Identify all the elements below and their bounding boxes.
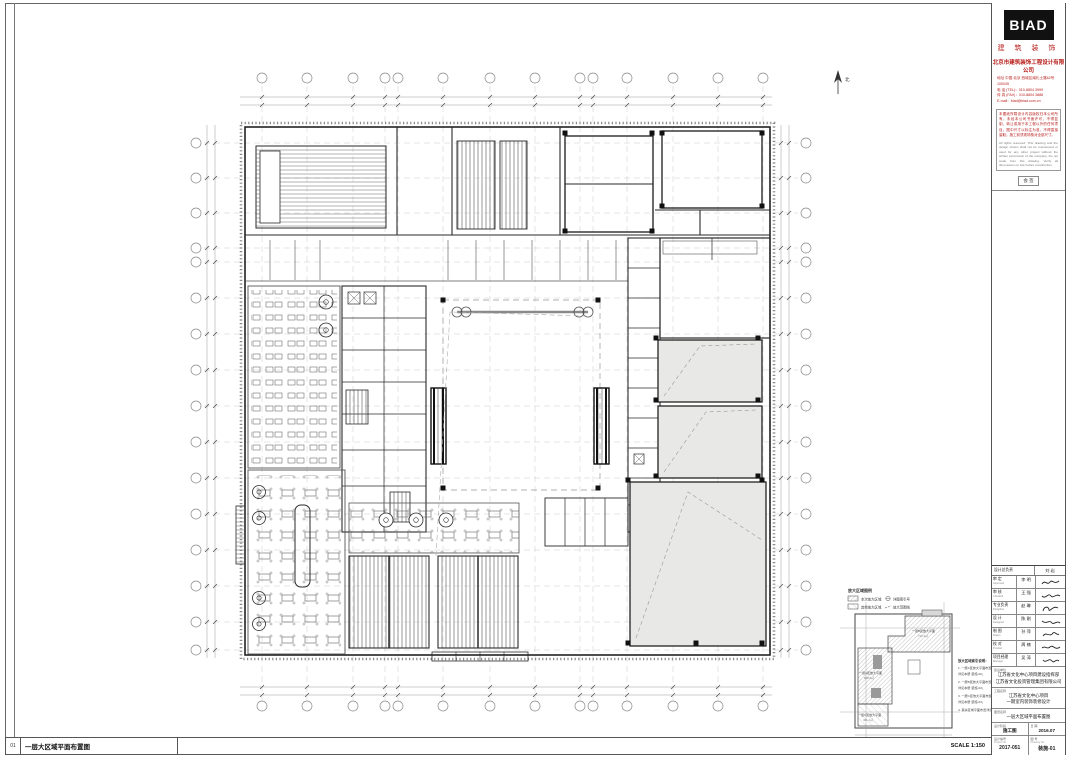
client-line: 江苏省文化投资管理集团有限公司 [994,679,1063,685]
row-role-en: Discipline [993,608,1015,611]
keyplan-zone-c: 一层C区放大平面 [858,712,881,717]
drawing-no-en: Drawing No. [1031,741,1064,744]
project-line: 一期室内装饰装修设计 [994,699,1063,705]
countersign-area [992,190,1065,565]
row-name: 王 强 [1017,589,1036,601]
keyplan-zone-b-area: 772.3㎡ [918,634,928,638]
address-line: 地址 中国 北京 西城区南礼士路62号 100045 [997,76,1060,88]
north-label: 北 [845,76,850,83]
notes-english: All rights reserved. This drawing and th… [999,141,1058,168]
keyplan-legend-title: 放大区域图例 [847,587,872,593]
legend-item-2: 其他放大区域 [861,605,882,610]
row-name: 赵 琳 [1017,602,1036,614]
row-role-en: Drawn [993,634,1015,637]
row-role-en: Proofed [993,647,1015,650]
titleblock-row: 设 计Designed 陈 刚 [992,615,1065,628]
titleblock-row: 制 图Drawn 孙 萍 [992,628,1065,641]
keyplan-zone-a: 一层A区放大平面 [859,670,882,675]
drawing-title-value: 一层大区域平面布置图 [994,714,1063,720]
company-address: 地址 中国 北京 西城区南礼士路62号 100045 电 话 (TEL)：010… [997,76,1060,105]
signature [1036,628,1065,640]
project-no-value: 2017-051 [994,745,1026,751]
notes-chinese: 本图纸所载设计内容版权归本公司所有，未经本公司书面许可，不得复制、转让或用于本工… [999,112,1058,138]
stage-value: 施工图 [994,728,1026,734]
signature [1036,589,1065,601]
keyplan-note: 详见本册 装施-02； [958,671,985,676]
row-name: 李 明 [1017,576,1036,588]
legend-item-1: 本次放大区域 [861,597,882,602]
client-line: 江苏省文化中心项目建设指挥部 [994,672,1063,678]
shaded-zones [630,340,766,646]
project-block: 工程名称 江苏省文化中心项目 一期室内装饰装修设计 [992,688,1065,709]
date-value: 2016.07 [1031,728,1064,733]
row-role-en: Checked [993,595,1015,598]
meta-row: 设计阶段 施工图 日 期 2016.07 [992,723,1065,736]
signature [1036,576,1065,588]
drawing-no-value: 装施-01 [1031,745,1064,752]
project-no-en: Project No. [994,741,1026,744]
row-name: 孙 萍 [1017,628,1036,640]
titleblock-header: 设计总负责 刘 岩 [992,566,1065,576]
client-block: 建设单位 江苏省文化中心项目建设指挥部 江苏省文化投资管理集团有限公司 [992,667,1065,688]
chief-name: 刘 岩 [1035,566,1065,575]
numbers-row: 设计编号 Project No. 2017-051 图 号 Drawing No… [992,736,1065,755]
keyplan-notes-title: 放大区域索引说明： [957,658,989,663]
signature [1036,602,1065,614]
keyplan-zone-a-area: 658.6㎡ [864,676,874,680]
signature [1036,654,1065,666]
footer-spacer [178,738,951,754]
company-name: 北京市建筑装饰工程设计有限公司 [992,58,1065,74]
row-name: 吴 涛 [1017,654,1036,666]
title-strip: BIAD 建 筑 装 饰 北京市建筑装饰工程设计有限公司 地址 中国 北京 西城… [991,3,1066,755]
logo-text: BIAD [1009,17,1047,33]
escalator-right [594,388,609,464]
keyplan-note: 详见本册 装施-03； [958,685,985,690]
north-arrow-icon: 北 [834,70,850,94]
keyplan: 放大区域图例 本次放大区域 详图索引号 其他放大区域 放大范围线 [840,587,1011,741]
footer-bar: 01 一层大区域平面布置图 SCALE 1:150 [5,737,991,755]
sheet-title: 一层大区域平面布置图 [21,738,178,754]
title-block: 设计总负责 刘 岩 审 定Approved 李 明 审 核Checked 王 强… [992,565,1065,755]
legend-item-1-symbol: 详图索引号 [893,597,911,602]
keyplan-zone-c-area: 401.2㎡ [863,718,873,722]
keyplan-note: 详见本册 装施-04； [958,699,985,704]
titleblock-row: 项目经理Manager 吴 涛 [992,654,1065,667]
floor-plan-svg: 北 放大区域图例 本次放大区域 详图索引号 其他放大区域 放大范围线 [0,0,1070,761]
copyright-notes: 本图纸所载设计内容版权归本公司所有，未经本公司书面许可，不得复制、转让或用于本工… [996,109,1061,171]
keyplan-zone-b: 一层B区放大平面 [912,628,935,633]
signature [1036,615,1065,627]
row-name: 陈 刚 [1017,615,1036,627]
biad-logo: BIAD [1004,10,1054,40]
titleblock-row: 校 对Proofed 周 楠 [992,641,1065,654]
titleblock-row: 审 定Approved 李 明 [992,576,1065,589]
chief-role: 设计总负责 [992,566,1035,575]
row-role-en: Designed [993,621,1015,624]
drawing-title-block: 图纸名称 一层大区域平面布置图 [992,709,1065,723]
sheet-index: 01 [5,738,21,754]
titleblock-row: 审 核Checked 王 强 [992,589,1065,602]
legend-item-2-symbol: 放大范围线 [893,605,911,610]
row-name: 周 楠 [1017,641,1036,653]
logo-subtitle: 建 筑 装 饰 [992,43,1065,53]
drawing-sheet: 北 放大区域图例 本次放大区域 详图索引号 其他放大区域 放大范围线 [0,0,1070,761]
row-role-en: Manager [993,660,1015,663]
countersign-label: 会 签 [1018,176,1038,186]
titleblock-row: 专业负责Discipline 赵 琳 [992,602,1065,615]
address-line: E-mail：biad@biad.com.cn [997,99,1060,105]
row-role-en: Approved [993,582,1015,585]
scale-label: SCALE 1:150 [951,738,991,754]
signature [1036,641,1065,653]
